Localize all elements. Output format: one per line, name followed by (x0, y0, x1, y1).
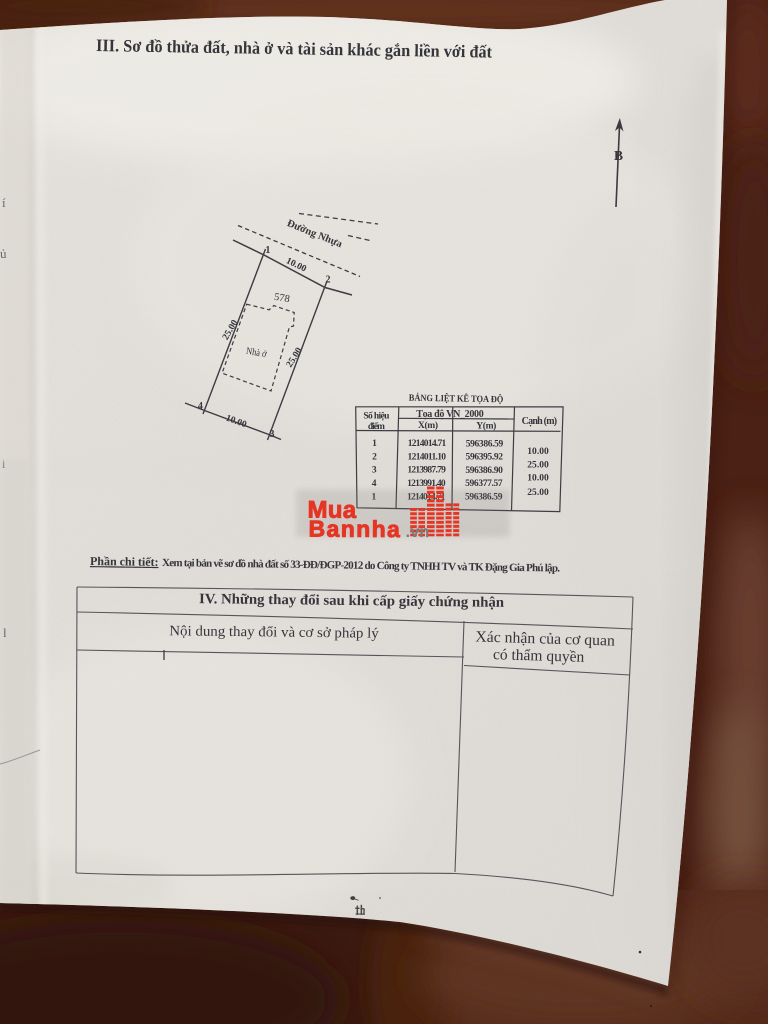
svg-text:3: 3 (372, 466, 377, 476)
svg-text:596395.92: 596395.92 (466, 453, 504, 463)
svg-text:10.00: 10.00 (527, 447, 549, 457)
svg-text:2: 2 (326, 275, 331, 286)
svg-text:Phần chi tiết:: Phần chi tiết: (90, 554, 159, 569)
svg-text:10.00: 10.00 (527, 474, 549, 484)
svg-text:1213987.79: 1213987.79 (407, 466, 446, 476)
svg-text:í: í (2, 195, 6, 210)
svg-text:B: B (614, 148, 623, 163)
svg-text:điểm: điểm (368, 421, 385, 432)
svg-text:596377.57: 596377.57 (465, 479, 503, 489)
svg-text:Tọa độ VN_2000: Tọa độ VN_2000 (416, 409, 484, 420)
svg-text:1214014.71: 1214014.71 (408, 439, 447, 449)
svg-text:4: 4 (198, 401, 203, 412)
svg-text:596386.59: 596386.59 (466, 439, 504, 449)
svg-text:1: 1 (265, 245, 270, 256)
svg-text:4: 4 (372, 479, 377, 489)
svg-text:Số hiệu: Số hiệu (363, 411, 390, 422)
svg-text:ủ: ủ (0, 246, 7, 261)
svg-text:Cạnh (m): Cạnh (m) (522, 416, 558, 427)
svg-text:l: l (3, 625, 7, 640)
svg-text:Y(m): Y(m) (476, 421, 496, 432)
svg-text:25.00: 25.00 (527, 488, 549, 498)
svg-text:25.00: 25.00 (527, 461, 549, 471)
svg-text:Nội dung thay đổi và cơ sở phá: Nội dung thay đổi và cơ sở pháp lý (169, 623, 379, 642)
svg-text:Bannha: Bannha (308, 516, 401, 543)
svg-text:3: 3 (270, 429, 275, 440)
svg-text:.vn: .vn (405, 523, 429, 541)
svg-text:2: 2 (372, 452, 377, 462)
svg-text:X(m): X(m) (418, 420, 438, 431)
svg-text:596386.90: 596386.90 (465, 466, 503, 476)
svg-text:có thẩm quyền: có thẩm quyền (493, 646, 585, 666)
svg-text:1214011.10: 1214011.10 (408, 452, 447, 462)
svg-text:1: 1 (372, 439, 377, 449)
